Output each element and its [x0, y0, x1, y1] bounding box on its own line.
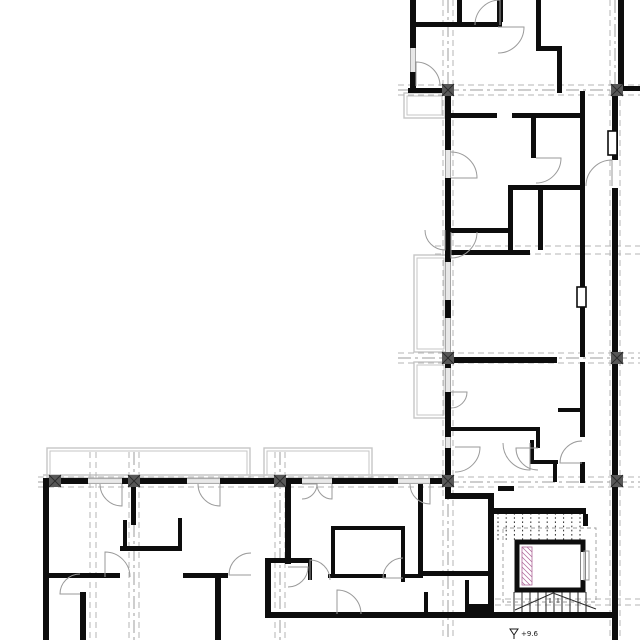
- wall: [43, 484, 49, 640]
- balcony-inner-line: [417, 365, 444, 415]
- door-arc: [455, 447, 480, 472]
- wall: [536, 0, 541, 50]
- wall: [424, 592, 428, 612]
- wall-frame-detail: [577, 287, 586, 307]
- wall: [331, 526, 405, 530]
- wall: [265, 558, 271, 618]
- wall: [531, 113, 536, 158]
- level-annotation: +9.6: [521, 630, 539, 638]
- wall: [328, 574, 386, 578]
- column-marker-layer: [49, 84, 623, 487]
- wall: [220, 478, 302, 484]
- wall: [331, 526, 335, 578]
- wall: [580, 305, 585, 357]
- door-arc: [416, 62, 440, 86]
- door-swing-layer: [60, 0, 612, 614]
- door-arc: [498, 27, 524, 53]
- balcony-outline: [404, 93, 445, 118]
- wall: [423, 571, 490, 576]
- wall: [215, 573, 221, 640]
- door-arc: [337, 590, 361, 614]
- balcony-layer: [43, 93, 448, 478]
- wall: [580, 237, 585, 287]
- wall: [451, 113, 497, 118]
- wall: [418, 484, 423, 578]
- balcony-inner-line: [50, 451, 247, 475]
- wall-frame-detail: [608, 131, 617, 155]
- door-arc: [451, 152, 477, 178]
- wall: [451, 357, 557, 363]
- wall: [451, 250, 530, 255]
- wall: [583, 514, 588, 526]
- wall: [580, 91, 585, 237]
- balcony-outline: [414, 255, 447, 352]
- balcony-outline: [414, 362, 447, 418]
- wall: [265, 612, 490, 618]
- wall: [612, 188, 618, 640]
- door-gap: [612, 160, 618, 188]
- wall: [448, 427, 540, 431]
- plan-canvas: +9.6: [0, 0, 640, 640]
- wall: [445, 300, 451, 318]
- wall: [512, 113, 582, 118]
- door-arc: [536, 158, 561, 183]
- wall: [332, 478, 398, 484]
- wall: [580, 412, 585, 437]
- elevator-shaft: [517, 542, 589, 590]
- door-arc: [310, 560, 330, 580]
- wall: [538, 190, 543, 250]
- balcony-inner-line: [407, 96, 442, 115]
- wall: [445, 93, 451, 150]
- wall: [558, 408, 582, 412]
- wall: [580, 362, 585, 412]
- wall: [403, 574, 423, 578]
- wall: [618, 0, 624, 90]
- door-arc: [475, 0, 500, 25]
- wall: [80, 592, 86, 640]
- wall: [183, 573, 228, 578]
- wall: [488, 508, 586, 514]
- level-marker-icon: [510, 629, 518, 635]
- balcony-inner-line: [417, 258, 444, 349]
- wall: [123, 520, 127, 548]
- balcony-outline: [47, 448, 250, 478]
- wall: [468, 604, 491, 612]
- wall: [451, 228, 508, 233]
- elevator-cab: [517, 542, 583, 590]
- balcony-inner-line: [267, 451, 369, 475]
- wall: [465, 580, 469, 612]
- floor-plan: +9.6: [0, 0, 640, 640]
- wall: [557, 46, 562, 93]
- door-arc: [425, 230, 445, 250]
- wall: [457, 0, 462, 22]
- wall: [43, 573, 120, 578]
- door-arc: [229, 553, 251, 575]
- level-annotation-group: +9.6: [510, 629, 539, 639]
- wall: [120, 546, 182, 551]
- wall: [508, 185, 585, 190]
- wall: [285, 484, 291, 564]
- wall: [445, 493, 492, 499]
- door-arc: [560, 441, 582, 463]
- wall: [178, 518, 182, 548]
- wall: [488, 612, 612, 618]
- wall: [445, 178, 451, 262]
- wall: [553, 460, 557, 482]
- wall: [508, 190, 513, 253]
- door-arc: [288, 567, 308, 587]
- wall: [401, 526, 405, 582]
- stair-direction-arrow: [515, 593, 596, 610]
- door-arc: [302, 484, 317, 499]
- wall: [410, 22, 502, 27]
- door-arc: [586, 160, 612, 186]
- wall: [536, 427, 540, 448]
- wall: [498, 486, 514, 491]
- door-arc: [317, 484, 332, 499]
- door-arc: [516, 448, 538, 470]
- wall: [131, 484, 136, 525]
- wall: [580, 462, 585, 483]
